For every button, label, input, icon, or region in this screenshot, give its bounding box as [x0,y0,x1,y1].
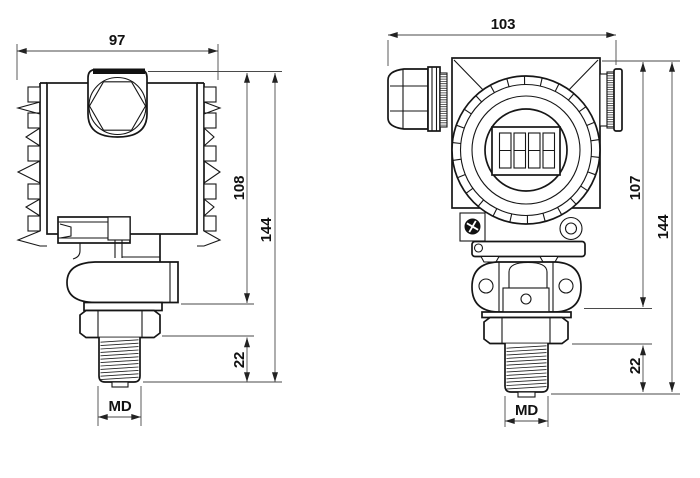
sensor-capsule-front [472,262,581,318]
dim-front-width: 103 [491,16,515,33]
technical-drawing: 97 108 22 144 MD [0,0,700,478]
blind-plug [600,69,622,131]
hex-nut-front [484,318,568,344]
bezel-serration-right [197,83,220,246]
process-thread-side [99,338,140,388]
top-cap [88,69,147,138]
bracket-plate [472,242,585,257]
dim-side-housing-height: 108 [231,176,248,200]
dim-side-overall-height: 144 [258,217,275,242]
dim-front-thread-length: 22 [627,358,644,374]
cable-gland [388,67,447,131]
dim-side-thread-label: MD [109,398,132,415]
dim-front-housing-height: 107 [627,176,644,200]
lcd-display [492,127,560,175]
side-view: 97 108 22 144 MD [17,32,282,426]
cap-seal-bar [93,69,145,75]
adapter-plate [84,303,162,311]
dim-front-overall-height: 144 [655,214,672,239]
process-thread-front [505,344,548,398]
capsule-block [503,288,549,312]
dim-front-thread-label: MD [515,402,538,419]
dim-side-thread-length: 22 [231,352,248,368]
thread-tip [518,392,535,397]
sensor-capsule-side [67,262,178,311]
front-view: 103 107 22 144 MD [388,16,680,427]
drawing-canvas: 97 108 22 144 MD [0,0,700,478]
dim-side-width: 97 [109,32,125,49]
hex-nut-side [80,311,160,338]
bezel-serration-left [18,83,47,246]
thread-tip [112,382,128,387]
